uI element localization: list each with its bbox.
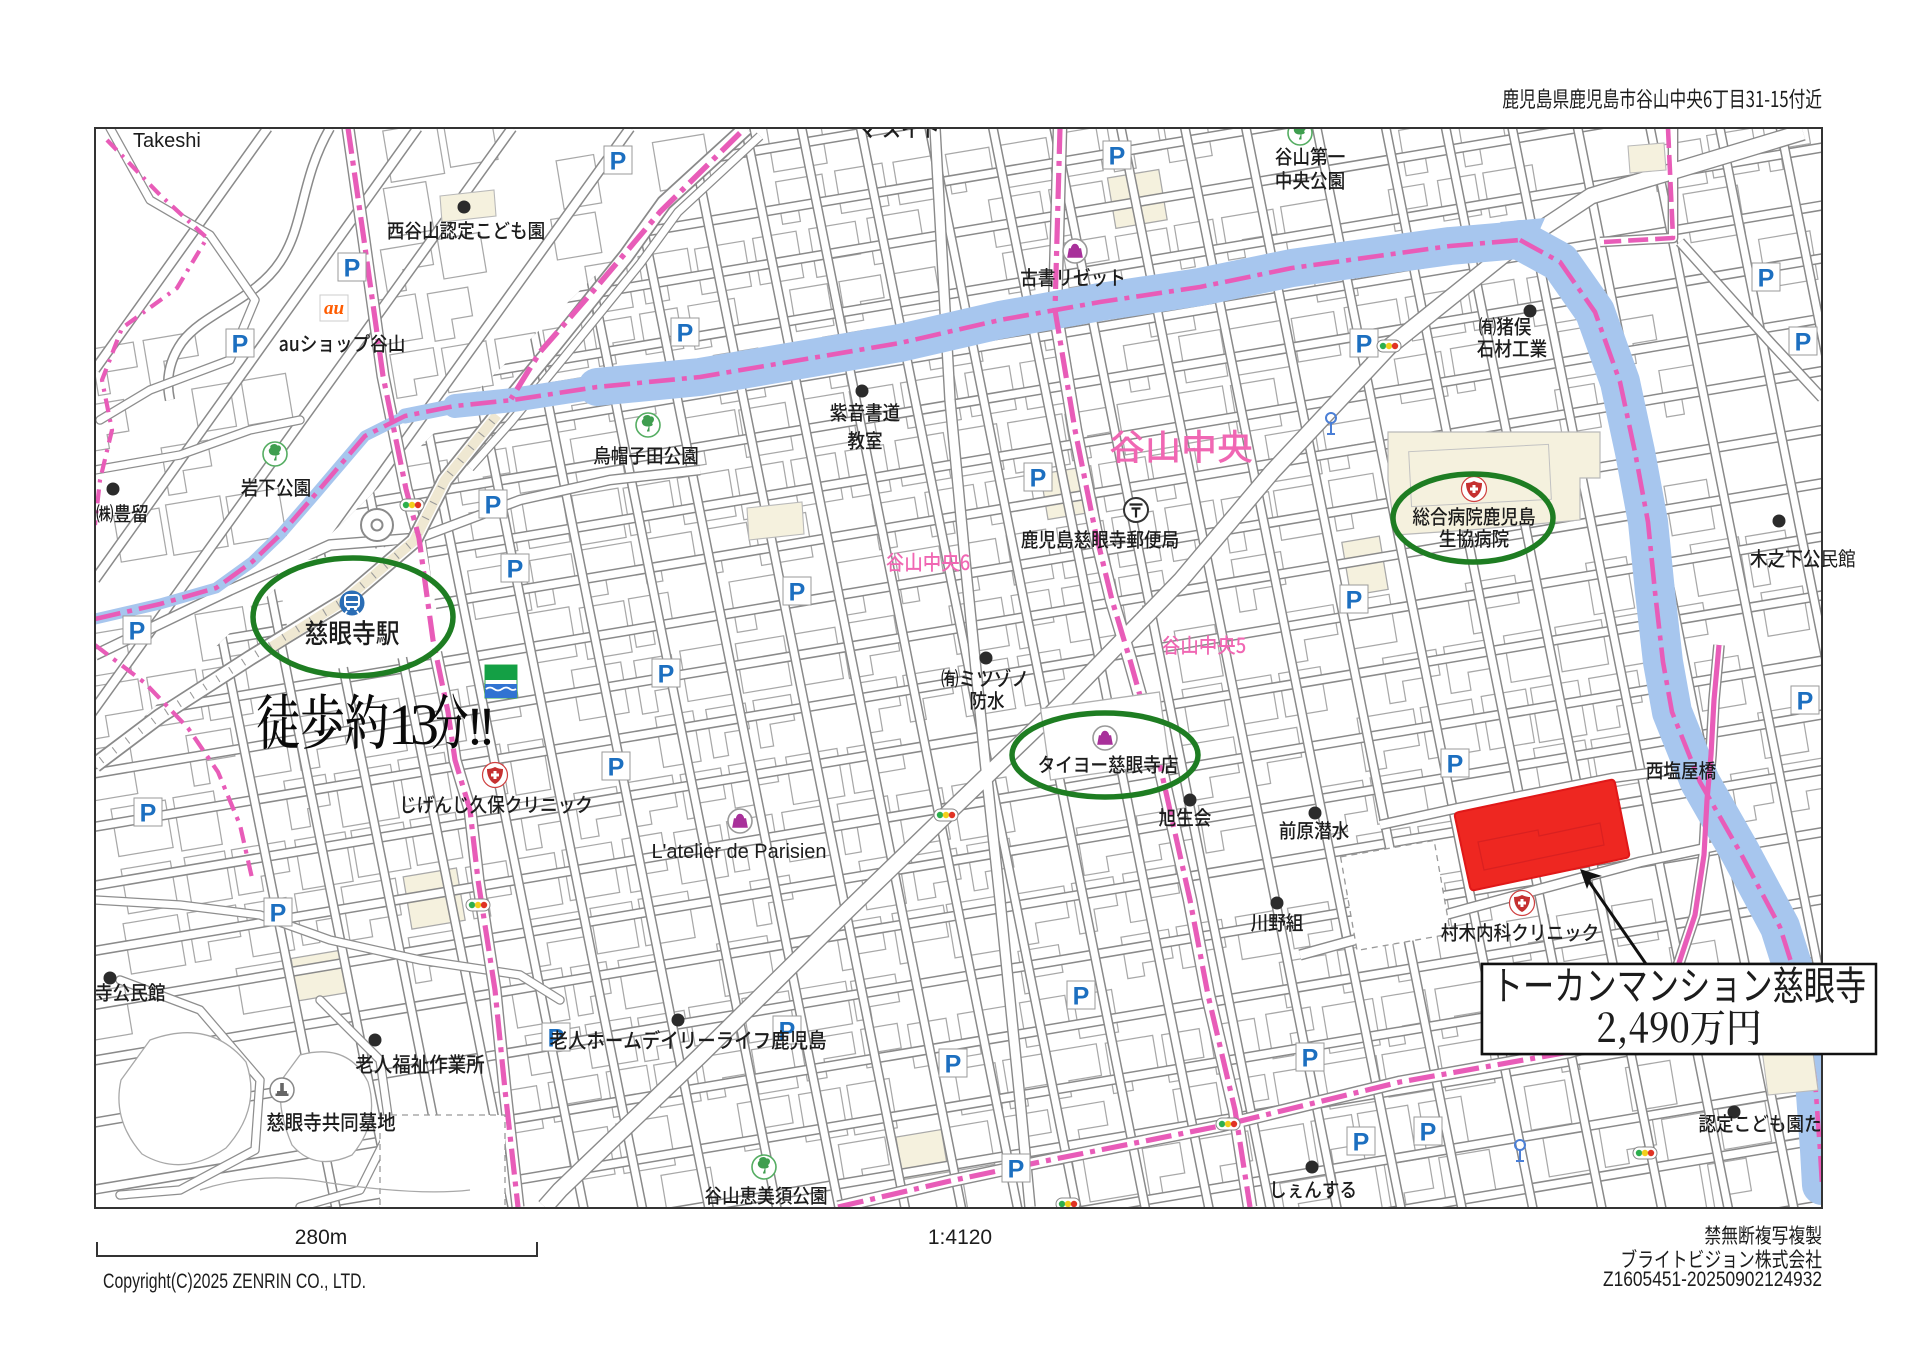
svg-text:au: au [324, 298, 344, 319]
svg-text:P: P [789, 579, 806, 607]
svg-text:P: P [1302, 1045, 1319, 1073]
svg-text:P: P [1758, 265, 1775, 293]
svg-text:Takeshi: Takeshi [133, 130, 201, 152]
svg-text:P: P [1073, 983, 1090, 1011]
svg-text:P: P [658, 661, 675, 689]
svg-text:P: P [1420, 1119, 1437, 1147]
svg-text:P: P [1795, 329, 1812, 357]
svg-text:P: P [344, 255, 361, 283]
svg-text:1:4120: 1:4120 [928, 1226, 992, 1249]
svg-text:P: P [485, 492, 502, 520]
svg-text:Copyright(C)2025 ZENRIN CO., L: Copyright(C)2025 ZENRIN CO., LTD. [103, 1270, 366, 1293]
svg-text:P: P [1797, 688, 1814, 716]
svg-text:P: P [1008, 1156, 1025, 1184]
svg-text:P: P [1356, 331, 1373, 359]
svg-text:P: P [140, 800, 157, 828]
svg-text:P: P [232, 331, 249, 359]
svg-text:P: P [1109, 143, 1126, 171]
svg-text:P: P [1447, 751, 1464, 779]
svg-text:Z1605451-20250902124932: Z1605451-20250902124932 [1603, 1268, 1822, 1291]
svg-text:P: P [1030, 465, 1047, 493]
svg-text:P: P [1346, 587, 1363, 615]
svg-text:L'atelier de Parisien: L'atelier de Parisien [651, 841, 826, 863]
svg-text:P: P [129, 618, 146, 646]
svg-text:P: P [507, 556, 524, 584]
svg-text:13: 13 [388, 692, 437, 757]
svg-text:280m: 280m [295, 1226, 348, 1249]
svg-text:!!: !! [466, 696, 491, 756]
svg-text:P: P [677, 320, 694, 348]
svg-text:P: P [945, 1051, 962, 1079]
svg-text:P: P [610, 148, 627, 176]
svg-text:P: P [270, 900, 287, 928]
svg-text:P: P [1353, 1129, 1370, 1157]
svg-text:P: P [608, 754, 625, 782]
